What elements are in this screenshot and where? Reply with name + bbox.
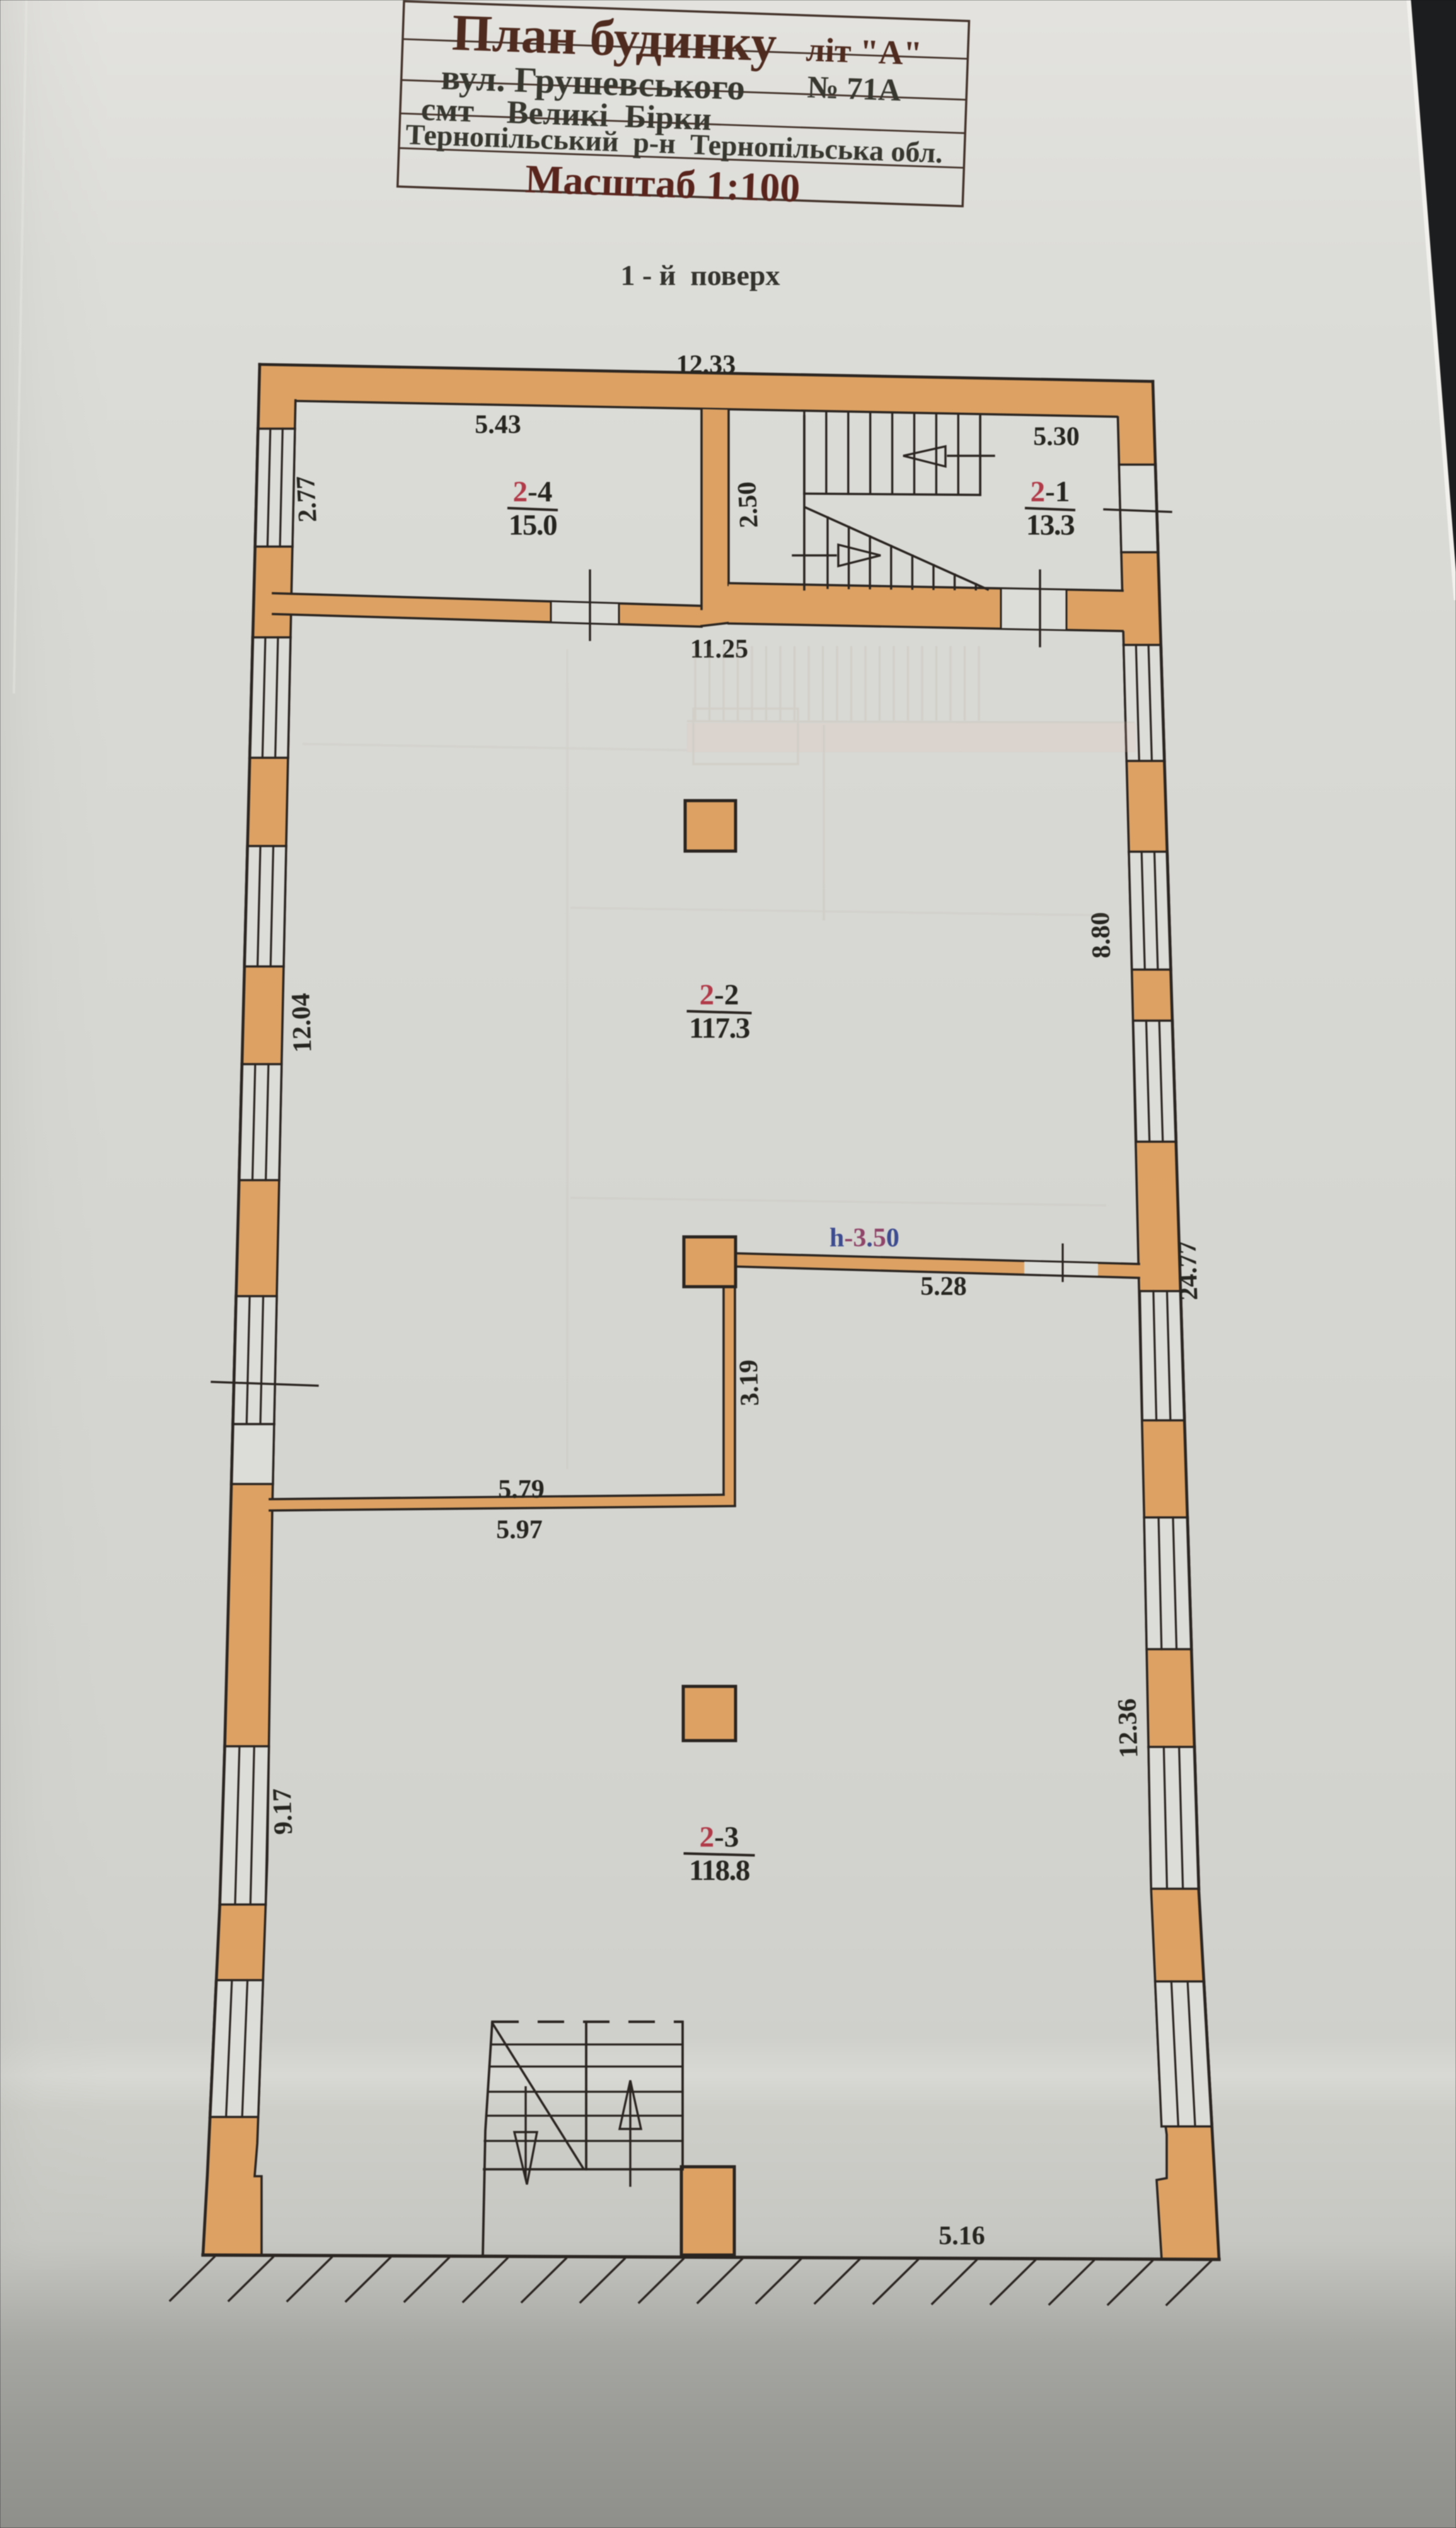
svg-text:h-3.50: h-3.50	[829, 1224, 899, 1253]
svg-text:5.97: 5.97	[496, 1516, 543, 1545]
svg-text:3.19: 3.19	[734, 1359, 765, 1406]
svg-text:2-4: 2-4	[513, 475, 553, 508]
svg-text:8.80: 8.80	[1086, 912, 1117, 959]
svg-text:11.25: 11.25	[690, 635, 748, 664]
svg-text:24.77: 24.77	[1172, 1240, 1203, 1301]
svg-text:літ "А": літ "А"	[806, 30, 923, 72]
svg-text:9.17: 9.17	[268, 1788, 299, 1835]
svg-text:5.16: 5.16	[939, 2222, 985, 2251]
svg-text:1 - й поверх: 1 - й поверх	[620, 259, 780, 291]
svg-text:№ 71А: № 71А	[807, 69, 902, 107]
svg-text:2.77: 2.77	[291, 475, 323, 523]
svg-text:5.30: 5.30	[1033, 422, 1080, 451]
svg-text:117.3: 117.3	[689, 1012, 749, 1045]
svg-text:15.0: 15.0	[509, 509, 557, 542]
svg-text:2-2: 2-2	[700, 978, 739, 1011]
svg-text:12.04: 12.04	[286, 992, 317, 1053]
svg-text:5.28: 5.28	[920, 1272, 967, 1301]
svg-text:5.79: 5.79	[498, 1475, 545, 1504]
svg-text:12.33: 12.33	[676, 351, 736, 380]
svg-text:5.43: 5.43	[475, 410, 521, 439]
svg-text:118.8: 118.8	[689, 1854, 749, 1887]
svg-text:2-3: 2-3	[700, 1821, 739, 1853]
svg-text:13.3: 13.3	[1026, 509, 1074, 542]
svg-text:2.50: 2.50	[732, 481, 764, 529]
svg-text:12.36: 12.36	[1112, 1698, 1143, 1758]
svg-text:2-1: 2-1	[1031, 475, 1070, 508]
